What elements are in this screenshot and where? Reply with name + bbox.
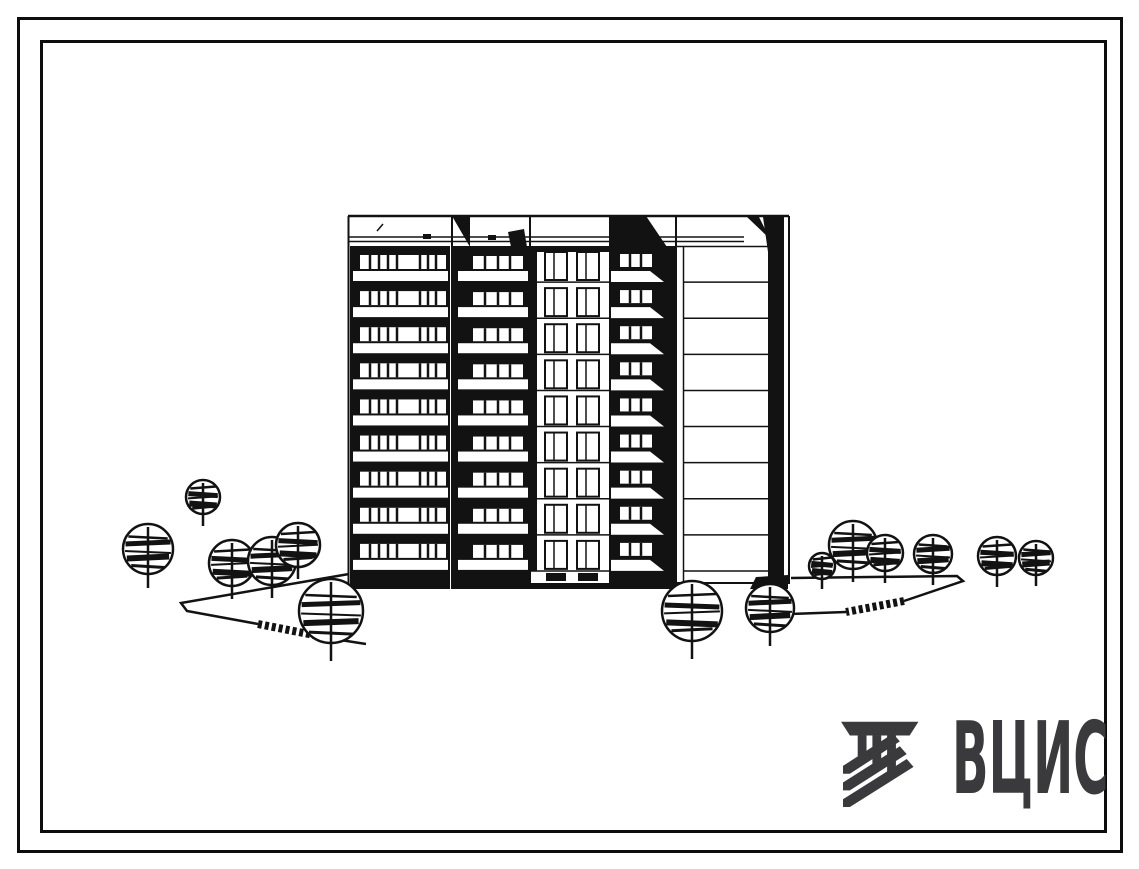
tree xyxy=(123,524,173,588)
parapet-shadow-band xyxy=(610,216,667,247)
basement-window xyxy=(578,573,598,581)
tree xyxy=(186,480,220,526)
parapet-shadow-pennant xyxy=(452,216,470,247)
walkway-hatch xyxy=(846,601,904,612)
publisher-logo: ВЦИС xyxy=(838,712,1139,810)
tree xyxy=(299,579,363,661)
section-c-plinth xyxy=(530,583,610,589)
basement-window xyxy=(546,573,566,581)
section-c-shadow-strip xyxy=(530,246,537,571)
tree xyxy=(1019,541,1053,586)
end-wall-shadow-strip xyxy=(768,250,784,583)
tree xyxy=(978,537,1016,587)
publisher-logo-text: ВЦИС xyxy=(952,714,1109,804)
tree xyxy=(746,584,794,646)
tree xyxy=(809,553,835,589)
parapet-shadow-small xyxy=(508,229,527,247)
drawing-sheet: ВЦИС xyxy=(0,0,1139,869)
vcis-emblem-icon xyxy=(838,712,946,810)
tree xyxy=(662,581,722,659)
